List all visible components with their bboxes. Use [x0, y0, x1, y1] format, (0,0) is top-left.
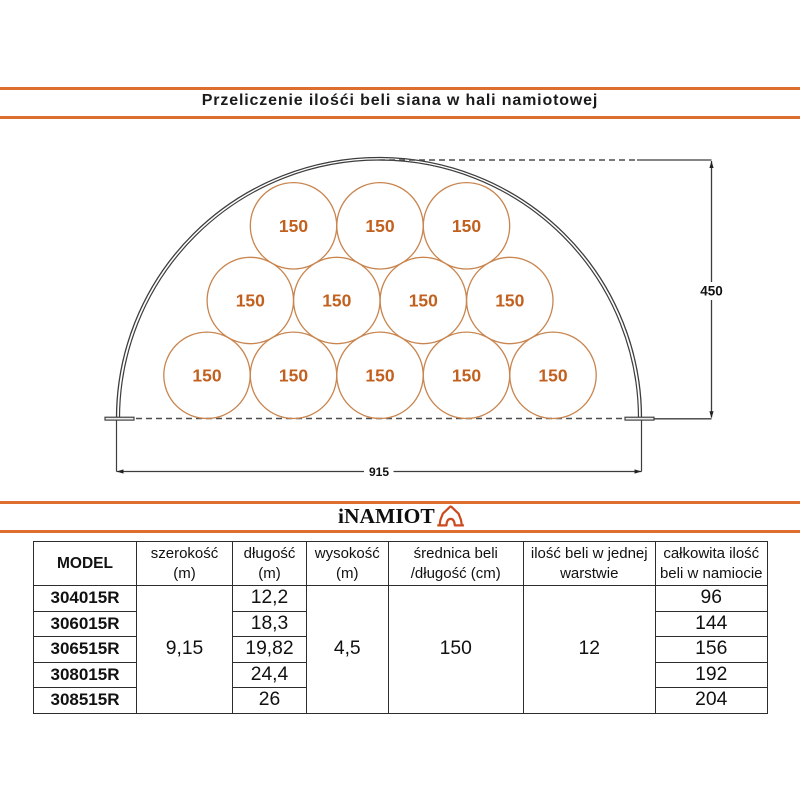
svg-text:150: 150 [538, 365, 567, 385]
svg-text:150: 150 [409, 291, 438, 311]
svg-text:915: 915 [369, 465, 389, 479]
svg-text:150: 150 [452, 216, 481, 236]
svg-text:150: 150 [192, 365, 221, 385]
svg-text:150: 150 [279, 216, 308, 236]
svg-text:150: 150 [365, 216, 394, 236]
svg-text:150: 150 [236, 291, 265, 311]
svg-text:150: 150 [495, 291, 524, 311]
svg-text:150: 150 [452, 365, 481, 385]
svg-text:150: 150 [365, 365, 394, 385]
svg-text:150: 150 [279, 365, 308, 385]
svg-text:450: 450 [700, 284, 723, 299]
svg-text:150: 150 [322, 291, 351, 311]
